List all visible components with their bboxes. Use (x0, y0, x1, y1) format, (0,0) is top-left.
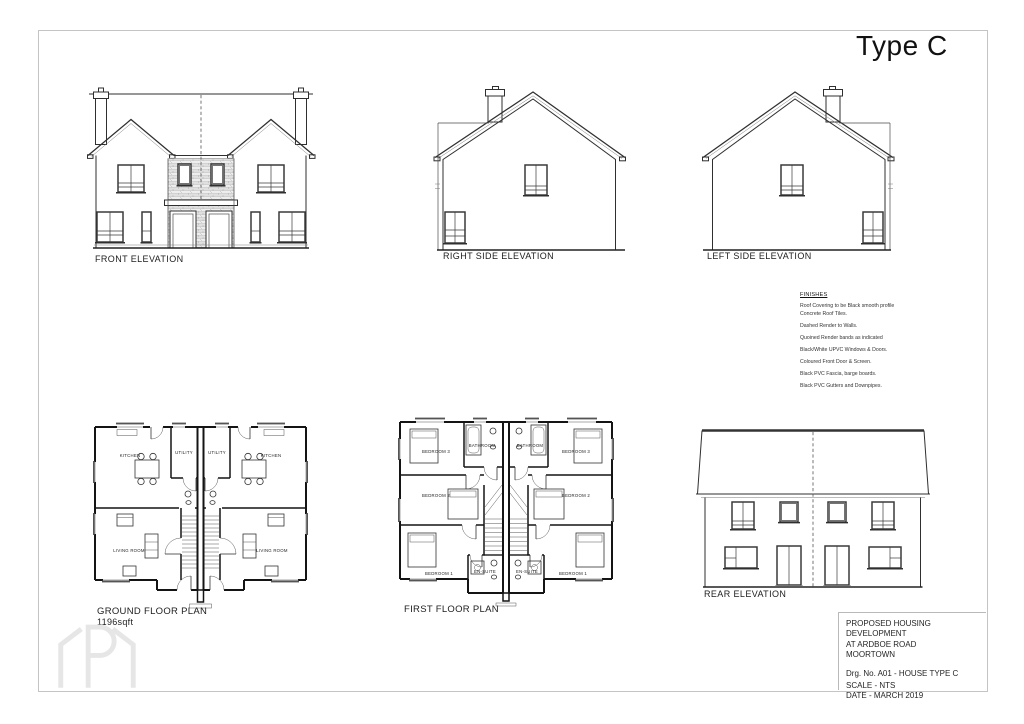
finishes-note: Dashed Render to Walls. (800, 323, 908, 331)
room-label-bedroom3-right: BEDROOM 3 (562, 449, 590, 454)
drawing-scale: SCALE - NTS (846, 681, 986, 691)
first-floor-window-right-gable (256, 165, 286, 193)
room-label-bedroom3-left: BEDROOM 3 (422, 449, 450, 454)
gable-roof (434, 92, 626, 161)
room-label-bedroom2-right: BEDROOM 2 (562, 493, 590, 498)
first-floor-window-small (826, 502, 848, 523)
room-label-kitchen-left: KITCHEN (120, 453, 141, 458)
window-cill (116, 423, 144, 425)
armchair (117, 514, 133, 526)
room-label-living-right: LIVING ROOM (256, 548, 288, 553)
hall-window-left (141, 212, 153, 243)
first-floor-window-left-gable (116, 165, 146, 193)
front-elevation-label: FRONT ELEVATION (95, 254, 184, 264)
ground-floor-window-right (277, 212, 307, 243)
ground-floor-window (867, 547, 903, 569)
title-block: PROPOSED HOUSING DEVELOPMENT AT ARDBOE R… (838, 612, 986, 690)
sofa (145, 534, 158, 558)
ground-floor-plan-drawing: KITCHEN UTILITY UTILITY KITCHEN LIVING R… (93, 420, 313, 612)
watermark-logo (48, 617, 146, 691)
drawing-number: Drg. No. A01 - HOUSE TYPE C (846, 669, 986, 679)
left-side-elevation-label: LEFT SIDE ELEVATION (707, 251, 812, 261)
door-canopy (165, 200, 238, 206)
first-floor-plan-label: FIRST FLOOR PLAN (404, 604, 499, 615)
toilet (490, 428, 496, 434)
ground-floor-half (93, 423, 198, 593)
kitchen-table (135, 460, 159, 478)
stairs (485, 519, 502, 555)
first-floor-window-small (778, 502, 800, 523)
finishes-note: Coloured Front Door & Screen. (800, 359, 908, 367)
rear-door (775, 546, 803, 586)
project-title-line1: PROPOSED HOUSING DEVELOPMENT (846, 619, 986, 640)
room-label-bathroom-left: BATHROOM (469, 443, 496, 448)
hall-window-right (250, 212, 262, 243)
basin (491, 575, 496, 579)
room-label-ensuite-left: EN-SUITE (474, 569, 496, 574)
finishes-note: Black/White UPVC Windows & Doors. (800, 347, 908, 355)
room-label-kitchen-right: KITCHEN (261, 453, 282, 458)
project-title-line3: MOORTOWN (846, 650, 986, 660)
finishes-notes: FINISHES Roof Covering to be Black smoot… (800, 292, 908, 395)
chimney-left (94, 88, 109, 145)
finishes-heading: FINISHES (800, 292, 908, 298)
finishes-note: Quoined Render bands as indicated (800, 335, 908, 343)
right-side-elevation-label: RIGHT SIDE ELEVATION (443, 251, 554, 261)
right-side-elevation-drawing (432, 86, 628, 254)
finishes-note: Black PVC Fascia, barge boards. (800, 371, 908, 379)
rear-door (823, 546, 851, 586)
first-floor-window (730, 502, 756, 530)
front-door-right (206, 211, 232, 248)
finishes-note: Black PVC Gutters and Downpipes. (800, 383, 908, 391)
room-label-bedroom1-right: BEDROOM 1 (559, 571, 587, 576)
centre-window-right (210, 164, 226, 186)
watermark-p-icon (88, 627, 114, 688)
bath-tub (466, 425, 481, 455)
sheet-title: Type C (856, 30, 948, 62)
upper-window (523, 165, 549, 196)
rear-elevation-drawing (693, 424, 933, 594)
toilet (491, 560, 497, 566)
side-table (123, 566, 136, 576)
front-door-left (170, 211, 196, 248)
chimney-right (294, 88, 309, 145)
front-elevation-drawing (86, 84, 316, 256)
drawing-date: DATE - MARCH 2019 (846, 691, 986, 701)
left-side-elevation-drawing (700, 86, 896, 254)
drawing-sheet: Type C (0, 0, 1024, 724)
room-label-utility-left: UTILITY (175, 450, 193, 455)
ground-floor-window (723, 547, 759, 569)
room-label-bathroom-right: BATHROOM (517, 443, 544, 448)
bed (410, 429, 438, 463)
wc-toilet (185, 491, 191, 497)
room-label-ensuite-right: EN-SUITE (516, 569, 538, 574)
first-floor-plan-drawing: BEDROOM 3 BATHROOM BATHROOM BEDROOM 3 BE… (396, 415, 620, 607)
centre-window-left (177, 164, 193, 186)
rear-elevation-label: REAR ELEVATION (704, 589, 786, 599)
room-label-bedroom2-left: BEDROOM 2 (422, 493, 450, 498)
room-label-utility-right: UTILITY (208, 450, 226, 455)
lower-window (443, 212, 467, 244)
project-title-line2: AT ARDBOE ROAD (846, 640, 986, 650)
bed (408, 533, 436, 567)
bed (448, 489, 478, 519)
party-wall (496, 422, 516, 606)
ground-floor-plan-label: GROUND FLOOR PLAN (97, 606, 207, 617)
ground-floor-window-left (95, 212, 125, 243)
watermark-left-bracket-icon (61, 629, 82, 688)
kitchen-counter (117, 430, 137, 436)
room-label-bedroom1-left: BEDROOM 1 (425, 571, 453, 576)
stairs (182, 516, 197, 568)
wc-basin (186, 501, 191, 505)
finishes-note: Roof Covering to be Black smooth profile… (800, 303, 908, 318)
first-floor-window (870, 502, 896, 530)
room-label-living-left: LIVING ROOM (113, 548, 145, 553)
